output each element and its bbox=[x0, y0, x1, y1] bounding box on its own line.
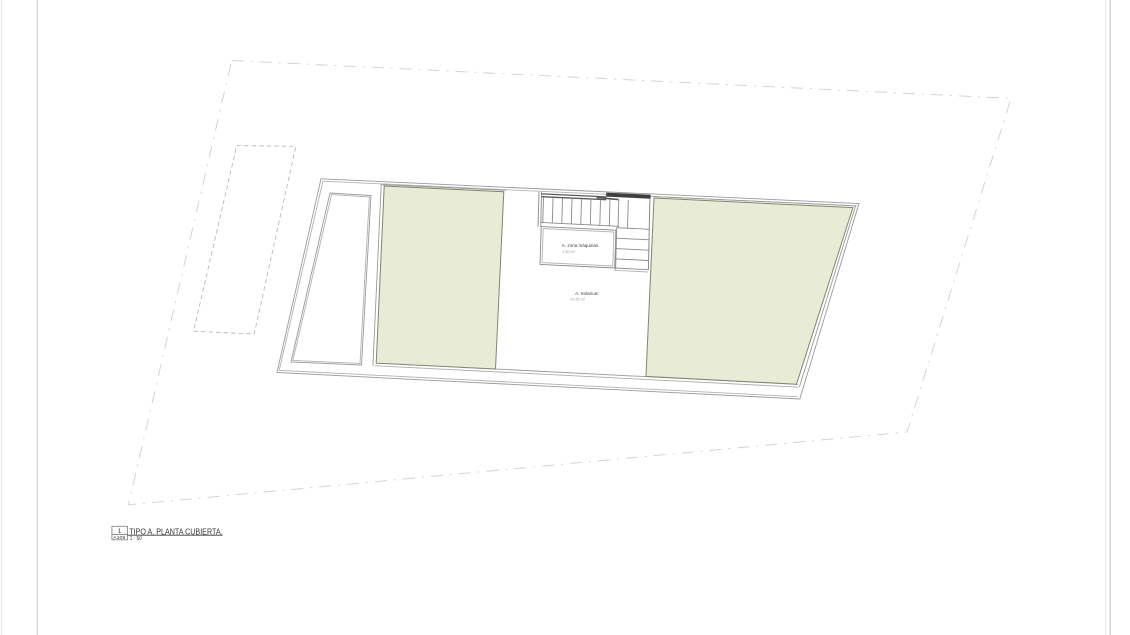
svg-text:A109: A109 bbox=[113, 535, 125, 541]
svg-text:43.55 m²: 43.55 m² bbox=[571, 297, 586, 301]
svg-text:1 : 50: 1 : 50 bbox=[130, 536, 142, 542]
svg-text:A. Solarium: A. Solarium bbox=[575, 291, 599, 296]
svg-text:A. zona máquinas: A. zona máquinas bbox=[562, 243, 599, 248]
svg-text:1.90 m²: 1.90 m² bbox=[562, 250, 576, 254]
svg-text:1: 1 bbox=[118, 528, 122, 535]
